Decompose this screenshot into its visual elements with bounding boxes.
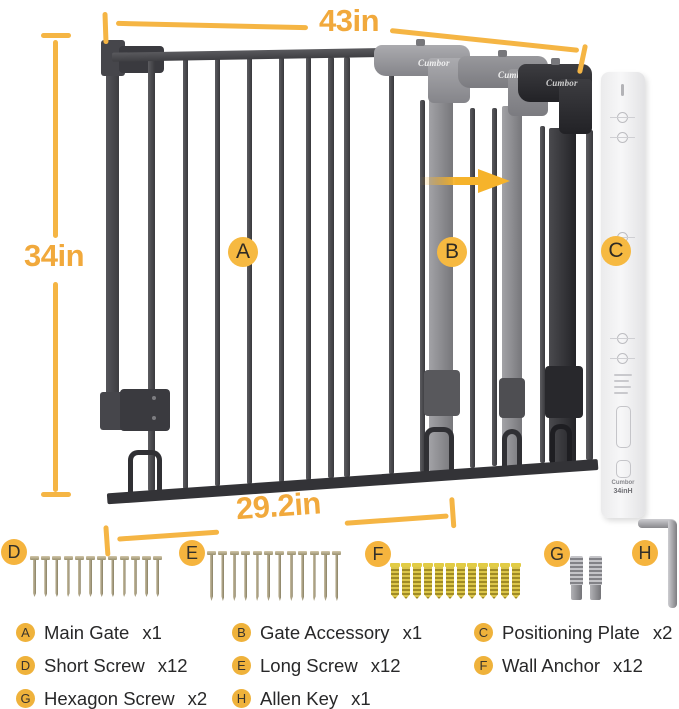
legend-part-qty: x1 bbox=[403, 622, 423, 644]
hardware-badge-h: H bbox=[632, 540, 658, 566]
screw-shaft bbox=[278, 555, 281, 601]
screw-head bbox=[108, 556, 117, 560]
anchor-body bbox=[501, 567, 509, 599]
anchor-flange bbox=[511, 563, 521, 567]
short-screw bbox=[142, 556, 151, 597]
short-screw bbox=[75, 556, 84, 597]
gate-width-dimension: 29.2in bbox=[216, 484, 340, 528]
anchor-body bbox=[479, 567, 487, 599]
hinge-screw bbox=[152, 416, 156, 420]
short-screw bbox=[86, 556, 95, 597]
wall-anchor bbox=[423, 563, 433, 599]
anchor-body bbox=[512, 567, 520, 599]
plate-text-mark bbox=[614, 380, 629, 382]
legend-letter-badge: C bbox=[474, 623, 493, 642]
hardware-badge-f: F bbox=[365, 541, 391, 567]
anchor-body bbox=[402, 567, 410, 599]
short-screw bbox=[153, 556, 162, 597]
screw-head bbox=[218, 551, 227, 555]
hardware-badge-e: E bbox=[179, 540, 205, 566]
dimension-line bbox=[53, 40, 58, 238]
anchor-body bbox=[457, 567, 465, 599]
legend-part-qty: x2 bbox=[653, 622, 673, 644]
wall-anchor bbox=[467, 563, 477, 599]
hex-shank bbox=[571, 585, 582, 600]
anchor-flange bbox=[412, 563, 422, 567]
long-screw bbox=[310, 551, 319, 601]
dimension-line bbox=[53, 282, 58, 492]
legend-letter-badge: D bbox=[16, 656, 35, 675]
positioning-plate: Cumbor 34inH bbox=[601, 72, 645, 518]
anchor-flange bbox=[489, 563, 499, 567]
screw-head bbox=[30, 556, 39, 560]
screw-shaft bbox=[67, 560, 70, 597]
short-screw bbox=[41, 556, 50, 597]
callout-badge-c: C bbox=[601, 236, 631, 266]
screw-head bbox=[275, 551, 284, 555]
accessory-bottom-bracket bbox=[499, 378, 525, 418]
hex-thread bbox=[570, 556, 583, 585]
hex-thread bbox=[589, 556, 602, 585]
short-screw bbox=[97, 556, 106, 597]
parts-legend: AMain Gatex1BGate Accessoryx1CPositionin… bbox=[16, 616, 672, 709]
legend-item: DShort Screwx12 bbox=[16, 655, 232, 677]
plate-hole-mark bbox=[617, 132, 628, 143]
gate-bar bbox=[344, 57, 350, 477]
screw-head bbox=[75, 556, 84, 560]
gate-bar bbox=[183, 56, 188, 489]
bottom-hinge-bracket bbox=[120, 389, 170, 431]
accessory-bottom-bracket bbox=[545, 366, 583, 418]
screw-shaft bbox=[145, 560, 148, 597]
anchor-flange bbox=[434, 563, 444, 567]
legend-part-qty: x1 bbox=[351, 688, 371, 709]
wall-anchor bbox=[500, 563, 510, 599]
legend-part-name: Gate Accessory bbox=[260, 622, 390, 644]
screw-shaft bbox=[301, 555, 304, 601]
legend-part-qty: x12 bbox=[613, 655, 643, 677]
legend-item: CPositioning Platex2 bbox=[474, 622, 670, 644]
long-screw bbox=[230, 551, 239, 601]
bracket-knob bbox=[551, 58, 560, 65]
plate-hole-mark bbox=[617, 353, 628, 364]
legend-part-name: Positioning Plate bbox=[502, 622, 640, 644]
legend-part-name: Wall Anchor bbox=[502, 655, 600, 677]
short-screw bbox=[108, 556, 117, 597]
screw-shaft bbox=[290, 555, 293, 601]
hex-shank bbox=[590, 585, 601, 600]
anchor-flange bbox=[467, 563, 477, 567]
long-screw bbox=[241, 551, 250, 601]
plate-hole-mark bbox=[617, 333, 628, 344]
gate-bar bbox=[306, 57, 311, 480]
gate-bar bbox=[492, 108, 497, 466]
screw-shaft bbox=[256, 555, 259, 601]
wall-anchor bbox=[390, 563, 400, 599]
plate-slot-mark bbox=[621, 84, 624, 96]
bracket-knob bbox=[498, 50, 507, 57]
legend-part-name: Main Gate bbox=[44, 622, 129, 644]
screw-head bbox=[287, 551, 296, 555]
anchor-flange bbox=[478, 563, 488, 567]
dimension-endcap bbox=[41, 492, 71, 497]
plate-text-mark bbox=[614, 392, 628, 394]
gate-bar bbox=[420, 100, 425, 472]
screw-shaft bbox=[313, 555, 316, 601]
product-diagram: Cumbor 34inH Cumbor Cumbor Cumbor bbox=[0, 0, 679, 709]
screw-shaft bbox=[134, 560, 137, 597]
short-screw bbox=[64, 556, 73, 597]
screw-head bbox=[153, 556, 162, 560]
screw-shaft bbox=[33, 560, 36, 597]
screw-head bbox=[64, 556, 73, 560]
dimension-endcap bbox=[449, 497, 456, 528]
screw-head bbox=[332, 551, 341, 555]
screw-head bbox=[120, 556, 129, 560]
screw-head bbox=[86, 556, 95, 560]
screw-shaft bbox=[44, 560, 47, 597]
gate-bar bbox=[389, 58, 394, 474]
screw-head bbox=[321, 551, 330, 555]
legend-item: HAllen Keyx1 bbox=[232, 688, 474, 709]
legend-letter-badge: G bbox=[16, 689, 35, 708]
legend-part-qty: x12 bbox=[371, 655, 401, 677]
wall-anchor bbox=[456, 563, 466, 599]
screw-shaft bbox=[89, 560, 92, 597]
brand-logo: Cumbor bbox=[546, 78, 578, 88]
callout-badge-a: A bbox=[228, 237, 258, 267]
short-screw bbox=[30, 556, 39, 597]
plate-outline-mark bbox=[616, 406, 631, 448]
wall-anchor bbox=[434, 563, 444, 599]
anchor-flange bbox=[390, 563, 400, 567]
anchor-body bbox=[424, 567, 432, 599]
anchor-body bbox=[391, 567, 399, 599]
screw-head bbox=[230, 551, 239, 555]
gate-foot bbox=[424, 427, 454, 472]
anchor-flange bbox=[445, 563, 455, 567]
screw-head bbox=[142, 556, 151, 560]
dimension-endcap bbox=[41, 33, 71, 38]
accessory-top-bracket: Cumbor bbox=[518, 64, 592, 134]
legend-item: FWall Anchorx12 bbox=[474, 655, 670, 677]
dimension-line bbox=[117, 530, 219, 542]
plate-brand-text: Cumbor bbox=[601, 480, 645, 486]
screw-head bbox=[264, 551, 273, 555]
screw-head bbox=[52, 556, 61, 560]
legend-letter-badge: B bbox=[232, 623, 251, 642]
screw-head bbox=[253, 551, 262, 555]
screw-shaft bbox=[111, 560, 114, 597]
anchor-body bbox=[413, 567, 421, 599]
long-screw bbox=[275, 551, 284, 601]
screw-shaft bbox=[100, 560, 103, 597]
short-screw bbox=[131, 556, 140, 597]
anchor-body bbox=[468, 567, 476, 599]
long-screw bbox=[332, 551, 341, 601]
screw-head bbox=[97, 556, 106, 560]
gate-bar bbox=[328, 57, 334, 478]
wall-anchor bbox=[412, 563, 422, 599]
screw-head bbox=[41, 556, 50, 560]
screw-shaft bbox=[324, 555, 327, 601]
legend-part-qty: x12 bbox=[158, 655, 188, 677]
screw-head bbox=[298, 551, 307, 555]
gate-bar bbox=[470, 108, 475, 468]
screw-shaft bbox=[55, 560, 58, 597]
bracket-knob bbox=[416, 39, 425, 46]
screw-shaft bbox=[221, 555, 224, 601]
anchor-flange bbox=[456, 563, 466, 567]
screw-shaft bbox=[78, 560, 81, 597]
wall-anchor bbox=[445, 563, 455, 599]
hinge-screw bbox=[152, 396, 156, 400]
brand-logo: Cumbor bbox=[418, 58, 450, 68]
wall-anchor bbox=[478, 563, 488, 599]
wall-mount-post bbox=[106, 42, 119, 430]
legend-item: BGate Accessoryx1 bbox=[232, 622, 474, 644]
gate-bar bbox=[215, 56, 220, 486]
long-screw bbox=[298, 551, 307, 601]
slide-direction-arrow bbox=[420, 168, 512, 194]
screw-shaft bbox=[244, 555, 247, 601]
legend-letter-badge: F bbox=[474, 656, 493, 675]
screw-shaft bbox=[267, 555, 270, 601]
anchor-body bbox=[435, 567, 443, 599]
total-width-dimension: 43in bbox=[307, 3, 391, 39]
legend-item: ELong Screwx12 bbox=[232, 655, 474, 677]
screw-shaft bbox=[210, 555, 213, 601]
screw-shaft bbox=[335, 555, 338, 601]
hexagon-screw bbox=[570, 556, 583, 600]
screw-shaft bbox=[233, 555, 236, 601]
dimension-endcap bbox=[103, 525, 110, 556]
plate-size-text: 34inH bbox=[601, 488, 645, 495]
long-screw bbox=[207, 551, 216, 601]
long-screw bbox=[287, 551, 296, 601]
short-screw bbox=[120, 556, 129, 597]
screw-head bbox=[310, 551, 319, 555]
legend-part-name: Hexagon Screw bbox=[44, 688, 175, 709]
long-screw bbox=[218, 551, 227, 601]
dimension-line bbox=[345, 514, 449, 526]
screw-shaft bbox=[123, 560, 126, 597]
gate-bar bbox=[279, 57, 284, 482]
legend-item: AMain Gatex1 bbox=[16, 622, 232, 644]
accessory-bottom-bracket bbox=[424, 370, 460, 416]
legend-part-name: Long Screw bbox=[260, 655, 358, 677]
plate-text-mark bbox=[614, 386, 631, 388]
anchor-flange bbox=[500, 563, 510, 567]
anchor-body bbox=[446, 567, 454, 599]
screw-shaft bbox=[156, 560, 159, 597]
dimension-line bbox=[116, 21, 308, 30]
legend-part-qty: x1 bbox=[142, 622, 162, 644]
legend-letter-badge: A bbox=[16, 623, 35, 642]
gate-bar bbox=[247, 56, 252, 484]
plate-hole-mark bbox=[617, 112, 628, 123]
legend-letter-badge: H bbox=[232, 689, 251, 708]
wall-anchor bbox=[401, 563, 411, 599]
plate-text-mark bbox=[614, 374, 632, 376]
allen-key bbox=[668, 520, 677, 608]
hexagon-screw bbox=[589, 556, 602, 600]
legend-part-qty: x2 bbox=[188, 688, 208, 709]
legend-item: GHexagon Screwx2 bbox=[16, 688, 232, 709]
wall-anchor bbox=[489, 563, 499, 599]
hardware-badge-d: D bbox=[1, 539, 27, 565]
plate-outline-mark bbox=[616, 460, 631, 478]
screw-head bbox=[207, 551, 216, 555]
wall-anchor bbox=[511, 563, 521, 599]
height-dimension: 34in bbox=[12, 238, 96, 274]
anchor-flange bbox=[423, 563, 433, 567]
accessory-top-bracket: Cumbor bbox=[374, 45, 470, 103]
legend-part-name: Allen Key bbox=[260, 688, 338, 709]
dimension-endcap bbox=[102, 12, 108, 44]
long-screw bbox=[264, 551, 273, 601]
long-screw bbox=[321, 551, 330, 601]
anchor-flange bbox=[401, 563, 411, 567]
anchor-body bbox=[490, 567, 498, 599]
screw-head bbox=[131, 556, 140, 560]
legend-part-name: Short Screw bbox=[44, 655, 145, 677]
hardware-badge-g: G bbox=[544, 541, 570, 567]
screw-head bbox=[241, 551, 250, 555]
long-screw bbox=[253, 551, 262, 601]
short-screw bbox=[52, 556, 61, 597]
legend-letter-badge: E bbox=[232, 656, 251, 675]
callout-badge-b: B bbox=[437, 237, 467, 267]
gate-bar bbox=[586, 130, 593, 460]
